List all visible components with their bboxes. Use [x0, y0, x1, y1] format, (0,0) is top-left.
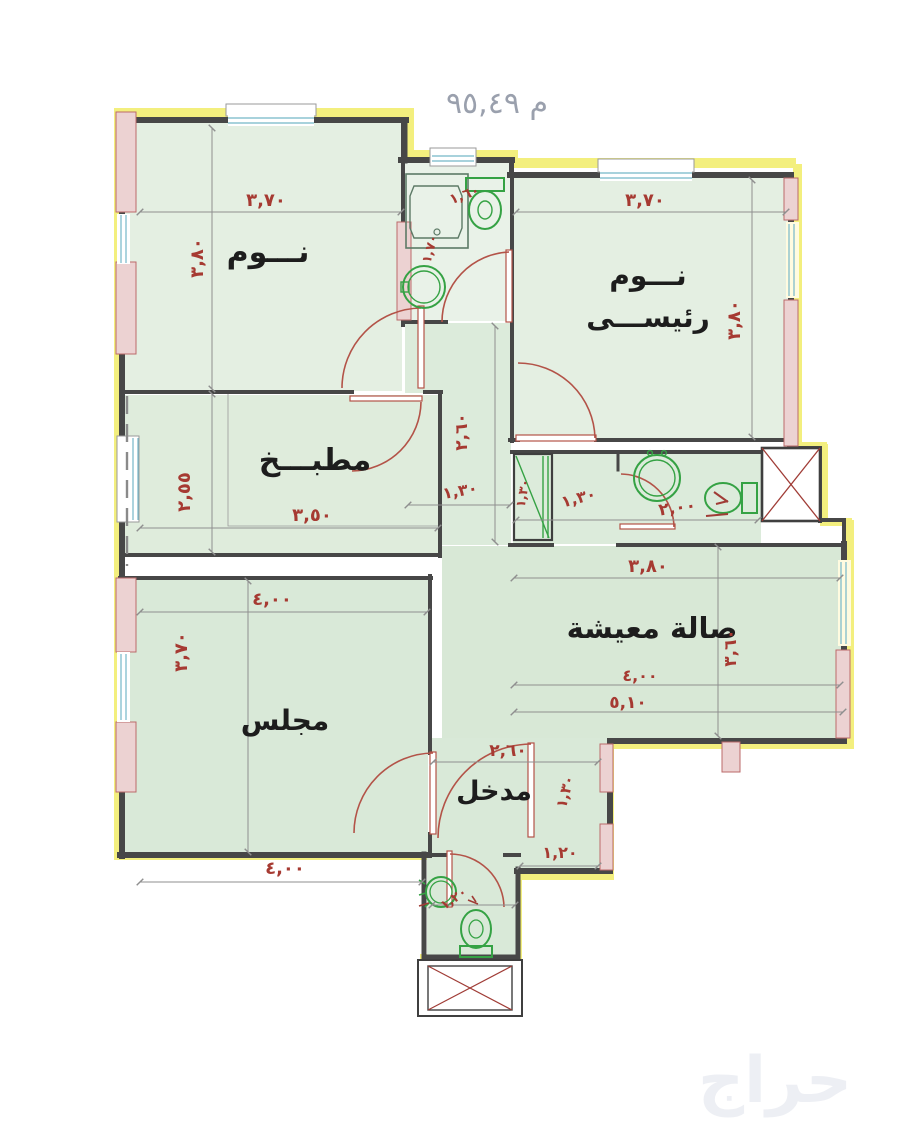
window-icon: [117, 652, 130, 722]
master-bedroom-label-1: نـــوم: [609, 259, 686, 292]
living-width-dim: ٤,٠٠: [622, 666, 657, 685]
window-icon: [226, 104, 316, 126]
shaft-x-icon: [418, 960, 522, 1016]
hall-length-dim: ٢,٦٠: [452, 413, 472, 451]
window-icon: [598, 159, 694, 181]
living-total-width-dim: ٥,١٠: [609, 693, 647, 713]
living-hall-label: صالة معيشة: [567, 611, 738, 645]
entrance-label: مدخل: [456, 776, 532, 807]
window-icon: [430, 148, 476, 166]
entrance-width-dim: ٢,٦٠: [489, 741, 527, 761]
majlis-width-dim: ٤,٠٠: [252, 589, 292, 610]
master-width-dim: ٣,٧٠: [625, 190, 665, 211]
kitchen-label: مطبـــخ: [259, 443, 371, 478]
living-height-dim: ٣,٦٠: [721, 629, 741, 667]
watermark-text: حراج: [698, 1044, 852, 1118]
bedroom-width-dim: ٣,٧٠: [246, 190, 286, 211]
floor-plan-page: م ٩٥,٤٩ نـــوم ٣,٧٠ ٣,٨٠ نـــوم رئيســـى…: [0, 0, 900, 1125]
floor-plan-svg: م ٩٥,٤٩ نـــوم ٣,٧٠ ٣,٨٠ نـــوم رئيســـى…: [0, 0, 900, 1125]
kitchen-width-dim: ٣,٥٠: [292, 505, 332, 526]
plot-bottom-width-dim: ٤,٠٠: [265, 858, 305, 879]
window-icon: [838, 560, 851, 646]
bedroom-label: نـــوم: [227, 235, 310, 270]
plan-area-title: م ٩٥,٤٩: [446, 86, 548, 121]
majlis-label: مجلس: [241, 704, 330, 737]
bedroom-height-dim: ٣,٨٠: [187, 238, 208, 278]
window-icon: [786, 222, 799, 298]
kitchen-height-dim: ٢,٥٥: [174, 472, 195, 512]
master-height-dim: ٣,٨٠: [724, 300, 745, 340]
master-bedroom-label-2: رئيســـى: [586, 301, 710, 334]
window-icon: [117, 214, 130, 264]
majlis-height-dim: ٣,٧٠: [171, 632, 192, 672]
entrance-side-dim: ١,٢٠: [542, 843, 577, 862]
living-upper-width-dim: ٣,٨٠: [628, 556, 668, 577]
shaft-x-icon: [762, 448, 820, 521]
